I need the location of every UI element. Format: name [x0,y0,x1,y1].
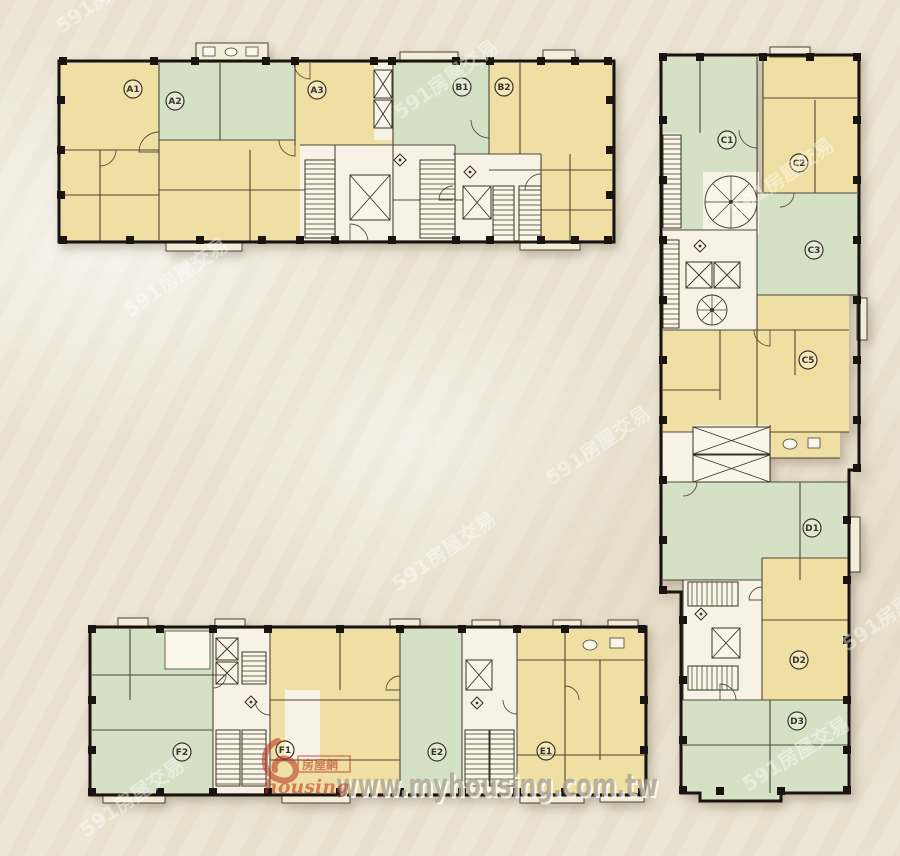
unit-label-b2: B2 [495,78,513,96]
logo-name-text: 房屋網 [302,757,338,772]
logo-script-text: housing [264,776,349,798]
svg-text:C3: C3 [808,246,821,256]
floor-plan-svg: A1 A2 A3 B1 B2 C1 C2 C3 C5 D1 D2 D3 F2 F… [0,0,900,856]
unit-label-d2: D2 [790,651,808,669]
svg-text:C5: C5 [802,356,815,366]
unit-label-d3: D3 [788,712,806,730]
floor-plan-image: A1 A2 A3 B1 B2 C1 C2 C3 C5 D1 D2 D3 F2 F… [0,0,900,856]
svg-text:A3: A3 [310,86,323,96]
svg-text:A2: A2 [168,97,181,107]
watermark-url: www.myhousing.com.tw [336,768,658,804]
svg-text:D2: D2 [792,656,806,666]
buildings [57,43,867,803]
svg-text:D3: D3 [790,717,804,727]
svg-text:E1: E1 [540,747,552,757]
svg-text:A1: A1 [126,85,139,95]
unit-label-c1: C1 [718,131,736,149]
svg-text:D1: D1 [805,524,819,534]
svg-text:E2: E2 [431,748,443,758]
unit-label-c5: C5 [799,351,817,369]
unit-label-c3: C3 [805,241,823,259]
watermark-591: 591房屋交易 [51,0,164,38]
watermark-591: 591房屋交易 [541,401,654,490]
svg-text:B2: B2 [497,83,510,93]
unit-label-a3: A3 [308,81,326,99]
unit-label-a2: A2 [166,92,184,110]
unit-label-e2: E2 [428,743,446,761]
unit-label-e1: E1 [537,742,555,760]
watermark-591: 591房屋交易 [387,507,500,596]
unit-label-d1: D1 [803,519,821,537]
unit-label-a1: A1 [124,80,142,98]
svg-text:F2: F2 [176,748,188,758]
svg-text:F1: F1 [279,746,291,756]
svg-text:C1: C1 [721,136,734,146]
